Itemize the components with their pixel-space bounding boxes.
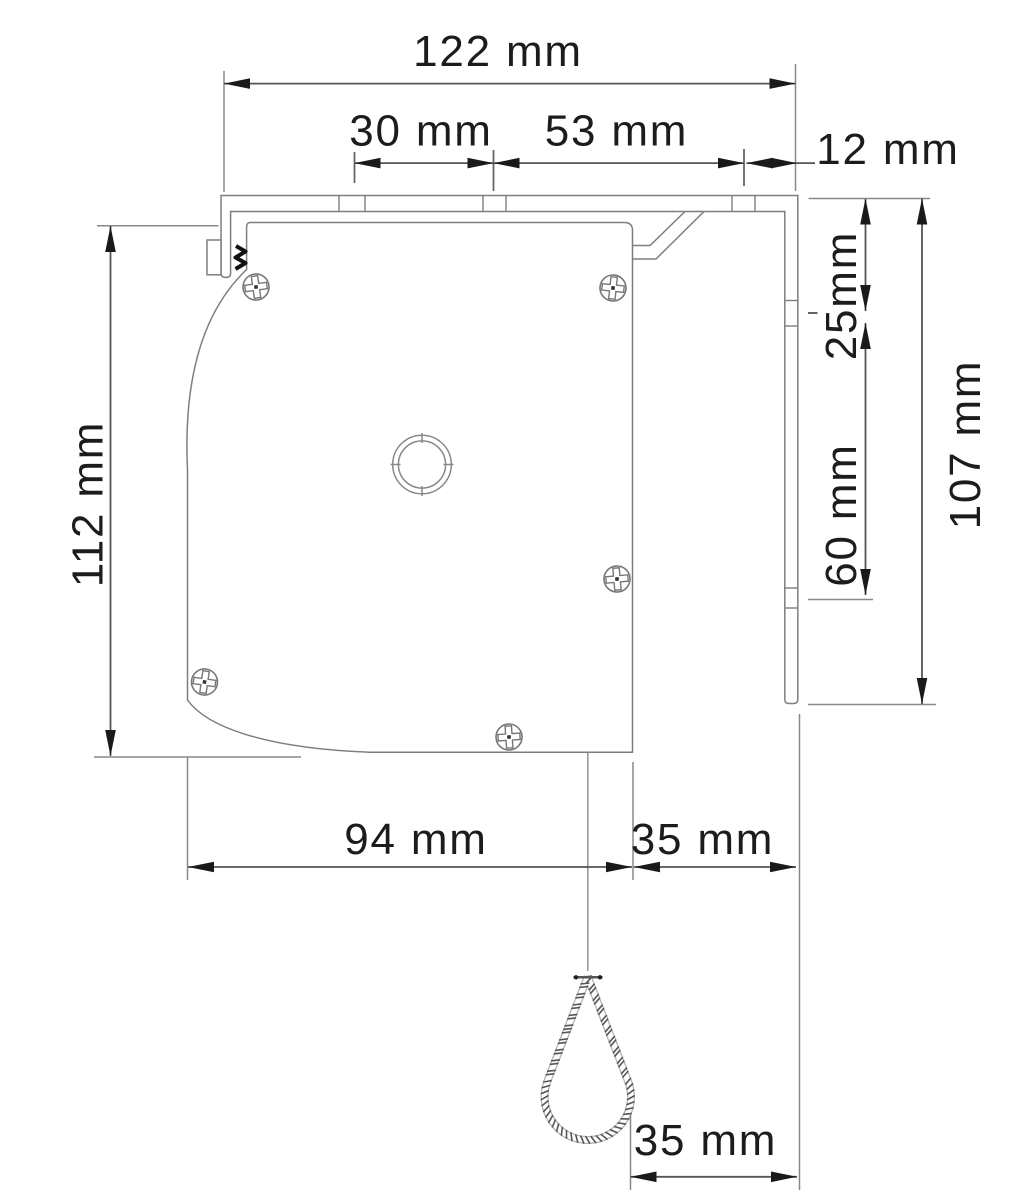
- svg-text:35 mm: 35 mm: [631, 815, 774, 864]
- svg-text:35 mm: 35 mm: [634, 1116, 777, 1165]
- svg-text:30 mm: 30 mm: [349, 107, 492, 156]
- svg-text:94 mm: 94 mm: [344, 815, 487, 864]
- svg-text:53 mm: 53 mm: [545, 107, 688, 156]
- svg-text:112 mm: 112 mm: [64, 421, 113, 587]
- svg-text:107 mm: 107 mm: [941, 360, 990, 530]
- svg-text:25mm: 25mm: [817, 231, 866, 360]
- svg-text:60 mm: 60 mm: [817, 443, 866, 586]
- svg-text:122 mm: 122 mm: [413, 27, 583, 76]
- svg-text:12 mm: 12 mm: [816, 125, 959, 174]
